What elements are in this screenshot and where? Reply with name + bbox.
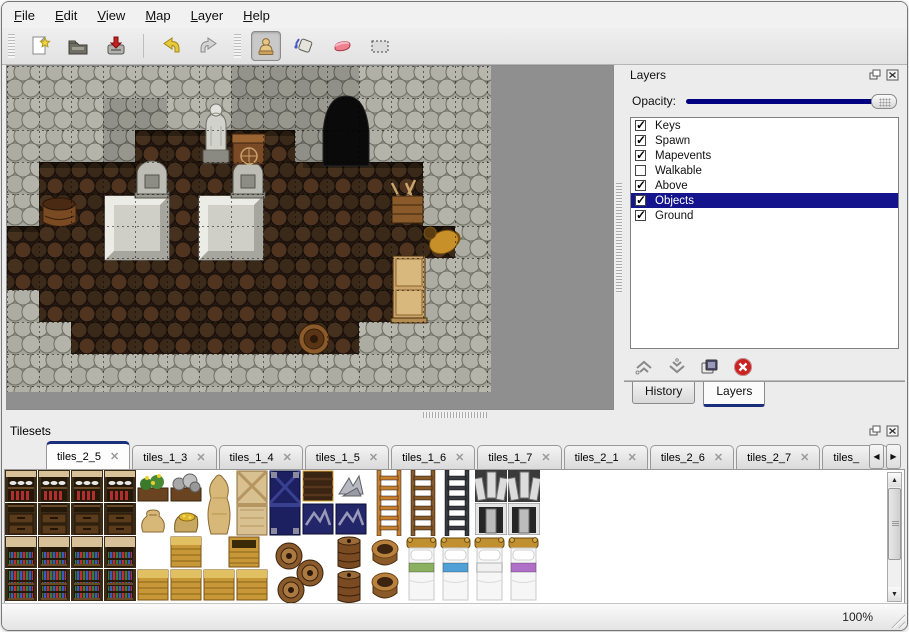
vertical-splitter[interactable] [614,65,624,410]
tileset-tab-label: tiles_1_5 [316,452,360,464]
tileset-tab-label: tiles_1_3 [143,452,187,464]
toolbar-drag-handle-2[interactable] [234,34,241,58]
horizontal-splitter-handle[interactable] [423,412,487,418]
tombstone-right [231,161,265,198]
close-tab-icon[interactable]: ✕ [628,451,637,464]
opacity-slider-fill [686,99,893,104]
layer-name: Objects [655,195,694,207]
menu-bar: FileEditViewMapLayerHelp [2,2,907,28]
tileset-tab-label: tiles_2_6 [661,452,705,464]
tileset-tab-label: tiles_1_6 [402,452,446,464]
close-tab-icon[interactable]: ✕ [541,451,550,464]
scrollbar-thumb[interactable] [888,488,901,560]
layer-name: Mapevents [655,150,711,162]
tileset-tab-tiles_2_1[interactable]: tiles_2_1✕ [564,445,648,469]
cabinet [391,256,427,323]
select-tool-button[interactable] [365,31,395,61]
tabs-scroll-left-button[interactable]: ◀ [869,444,884,469]
close-tab-icon[interactable]: ✕ [800,451,809,464]
dock-tab-history[interactable]: History [632,382,695,404]
duplicate-layer-button[interactable] [700,358,720,376]
float-panel-icon[interactable] [869,69,882,81]
layer-name: Walkable [655,165,702,177]
vertical-splitter-handle[interactable] [616,183,622,293]
undo-button[interactable] [156,31,186,61]
tileset-tab-tiles_2_6[interactable]: tiles_2_6✕ [650,445,734,469]
layer-row-mapevents[interactable]: Mapevents [631,148,898,163]
redo-button[interactable] [194,31,224,61]
tileset-tab-tiles_1_7[interactable]: tiles_1_7✕ [477,445,561,469]
stamp-tool-icon [254,34,278,58]
fill-tool-button[interactable] [289,31,319,61]
open-folder-icon [66,34,90,58]
tileset-tab-tiles_1_6[interactable]: tiles_1_6✕ [391,445,475,469]
opacity-slider[interactable] [686,94,897,109]
stone-platform-left [105,196,169,260]
tileset-tab-tiles_2_7[interactable]: tiles_2_7✕ [736,445,820,469]
tileset-vertical-scrollbar[interactable]: ▲ ▼ [887,472,902,602]
tilesets-panel: Tilesets tiles_2_5✕tiles_1_3✕tiles_1_4✕t… [2,420,907,605]
delete-layer-button[interactable] [733,357,753,377]
resize-grip[interactable] [889,612,905,628]
layer-visibility-checkbox[interactable] [635,165,646,176]
tilesets-panel-title: Tilesets [10,424,869,438]
dock-tab-layers[interactable]: Layers [703,382,765,407]
barrel-bottom [299,324,329,354]
layer-visibility-checkbox[interactable] [635,120,646,131]
layer-visibility-checkbox[interactable] [635,150,646,161]
zoom-level: 100% [842,610,873,624]
layer-row-above[interactable]: Above [631,178,898,193]
layer-name: Ground [655,210,693,222]
horizontal-splitter[interactable] [2,410,907,420]
spinning-wheel-table [232,134,265,164]
layer-row-walkable[interactable]: Walkable [631,163,898,178]
tileset-tab-label: tiles_1_4 [230,452,274,464]
barrel-pile [276,543,323,603]
layers-panel-title: Layers [630,68,869,82]
close-tab-icon[interactable]: ✕ [369,451,378,464]
layer-name: Above [655,180,688,192]
undo-icon [159,34,183,58]
tileset-tab-label: tiles_1_7 [488,452,532,464]
eraser-tool-button[interactable] [327,31,357,61]
tileset-tiles[interactable] [5,470,565,604]
scroll-up-button[interactable]: ▲ [888,473,901,487]
tileset-tab-label: tiles_ [833,452,859,464]
tileset-tab-tiles_2_5[interactable]: tiles_2_5✕ [46,441,130,469]
opacity-slider-track[interactable] [686,99,893,104]
tileset-tab-tiles_1_3[interactable]: tiles_1_3✕ [132,445,216,469]
fill-bucket-icon [291,33,317,59]
stamp-tool-button[interactable] [251,31,281,61]
layer-row-objects[interactable]: Objects [631,193,898,208]
layer-actions [624,353,905,381]
dock-tab-bar: HistoryLayers [624,381,905,411]
app-window: FileEditViewMapLayerHelp [1,1,908,631]
layer-name: Spawn [655,135,690,147]
selection-rect-icon [367,33,393,59]
menu-help[interactable]: Help [243,8,270,23]
toolbar-drag-handle[interactable] [8,34,15,58]
save-button[interactable] [101,31,131,61]
layer-row-spawn[interactable]: Spawn [631,133,898,148]
tileset-tab-label: tiles_2_7 [747,452,791,464]
menu-layer[interactable]: Layer [191,8,224,23]
close-tab-icon[interactable]: ✕ [196,451,205,464]
open-button[interactable] [63,31,93,61]
layer-row-ground[interactable]: Ground [631,208,898,223]
tileset-tab-tiles_1_5[interactable]: tiles_1_5✕ [305,445,389,469]
opacity-slider-thumb[interactable] [871,94,897,109]
toolbar [2,28,907,65]
lower-layer-button[interactable] [667,358,687,376]
layers-dock-header: Layers [624,65,905,85]
menu-view[interactable]: View [97,8,125,23]
map-canvas[interactable] [7,66,491,392]
layer-list[interactable]: KeysSpawnMapeventsWalkableAboveObjectsGr… [630,117,899,349]
close-panel-icon[interactable] [886,69,899,81]
opacity-label: Opacity: [632,94,676,108]
tileset-view[interactable]: ▲ ▼ [4,469,905,605]
save-icon [104,34,128,58]
layer-visibility-checkbox[interactable] [635,210,646,221]
close-tab-icon[interactable]: ✕ [714,451,723,464]
new-file-button[interactable] [25,31,55,61]
float-tilesets-icon[interactable] [869,425,882,437]
menu-map[interactable]: Map [145,8,170,23]
close-tab-icon[interactable]: ✕ [283,451,292,464]
menu-edit[interactable]: Edit [55,8,77,23]
layer-visibility-checkbox[interactable] [635,195,646,206]
close-tilesets-icon[interactable] [886,425,899,437]
close-tab-icon[interactable]: ✕ [110,450,119,463]
tileset-tab-tiles_1_4[interactable]: tiles_1_4✕ [219,445,303,469]
layer-row-keys[interactable]: Keys [631,118,898,133]
layer-name: Keys [655,120,681,132]
new-file-icon [28,34,52,58]
status-bar: 100% [2,603,907,630]
eraser-icon [329,33,355,59]
tileset-tab-label: tiles_2_1 [575,452,619,464]
tombstone-left [135,161,169,198]
layer-visibility-checkbox[interactable] [635,135,646,146]
map-viewport[interactable] [6,65,614,410]
redo-icon [197,34,221,58]
close-tab-icon[interactable]: ✕ [455,451,464,464]
scroll-down-button[interactable]: ▼ [888,587,901,601]
layer-visibility-checkbox[interactable] [635,180,646,191]
tileset-tile-graphics [5,470,541,603]
tileset-tab-bar: tiles_2_5✕tiles_1_3✕tiles_1_4✕tiles_1_5✕… [2,441,907,469]
raise-layer-button[interactable] [634,358,654,376]
tabs-scroll-right-button[interactable]: ▶ [886,444,901,469]
tileset-tab-label: tiles_2_5 [57,451,101,463]
layers-dock: Layers Opacity: KeysSpawnMapeventsWalkab… [624,65,905,411]
toolbar-separator [143,34,144,58]
menu-file[interactable]: File [14,8,35,23]
